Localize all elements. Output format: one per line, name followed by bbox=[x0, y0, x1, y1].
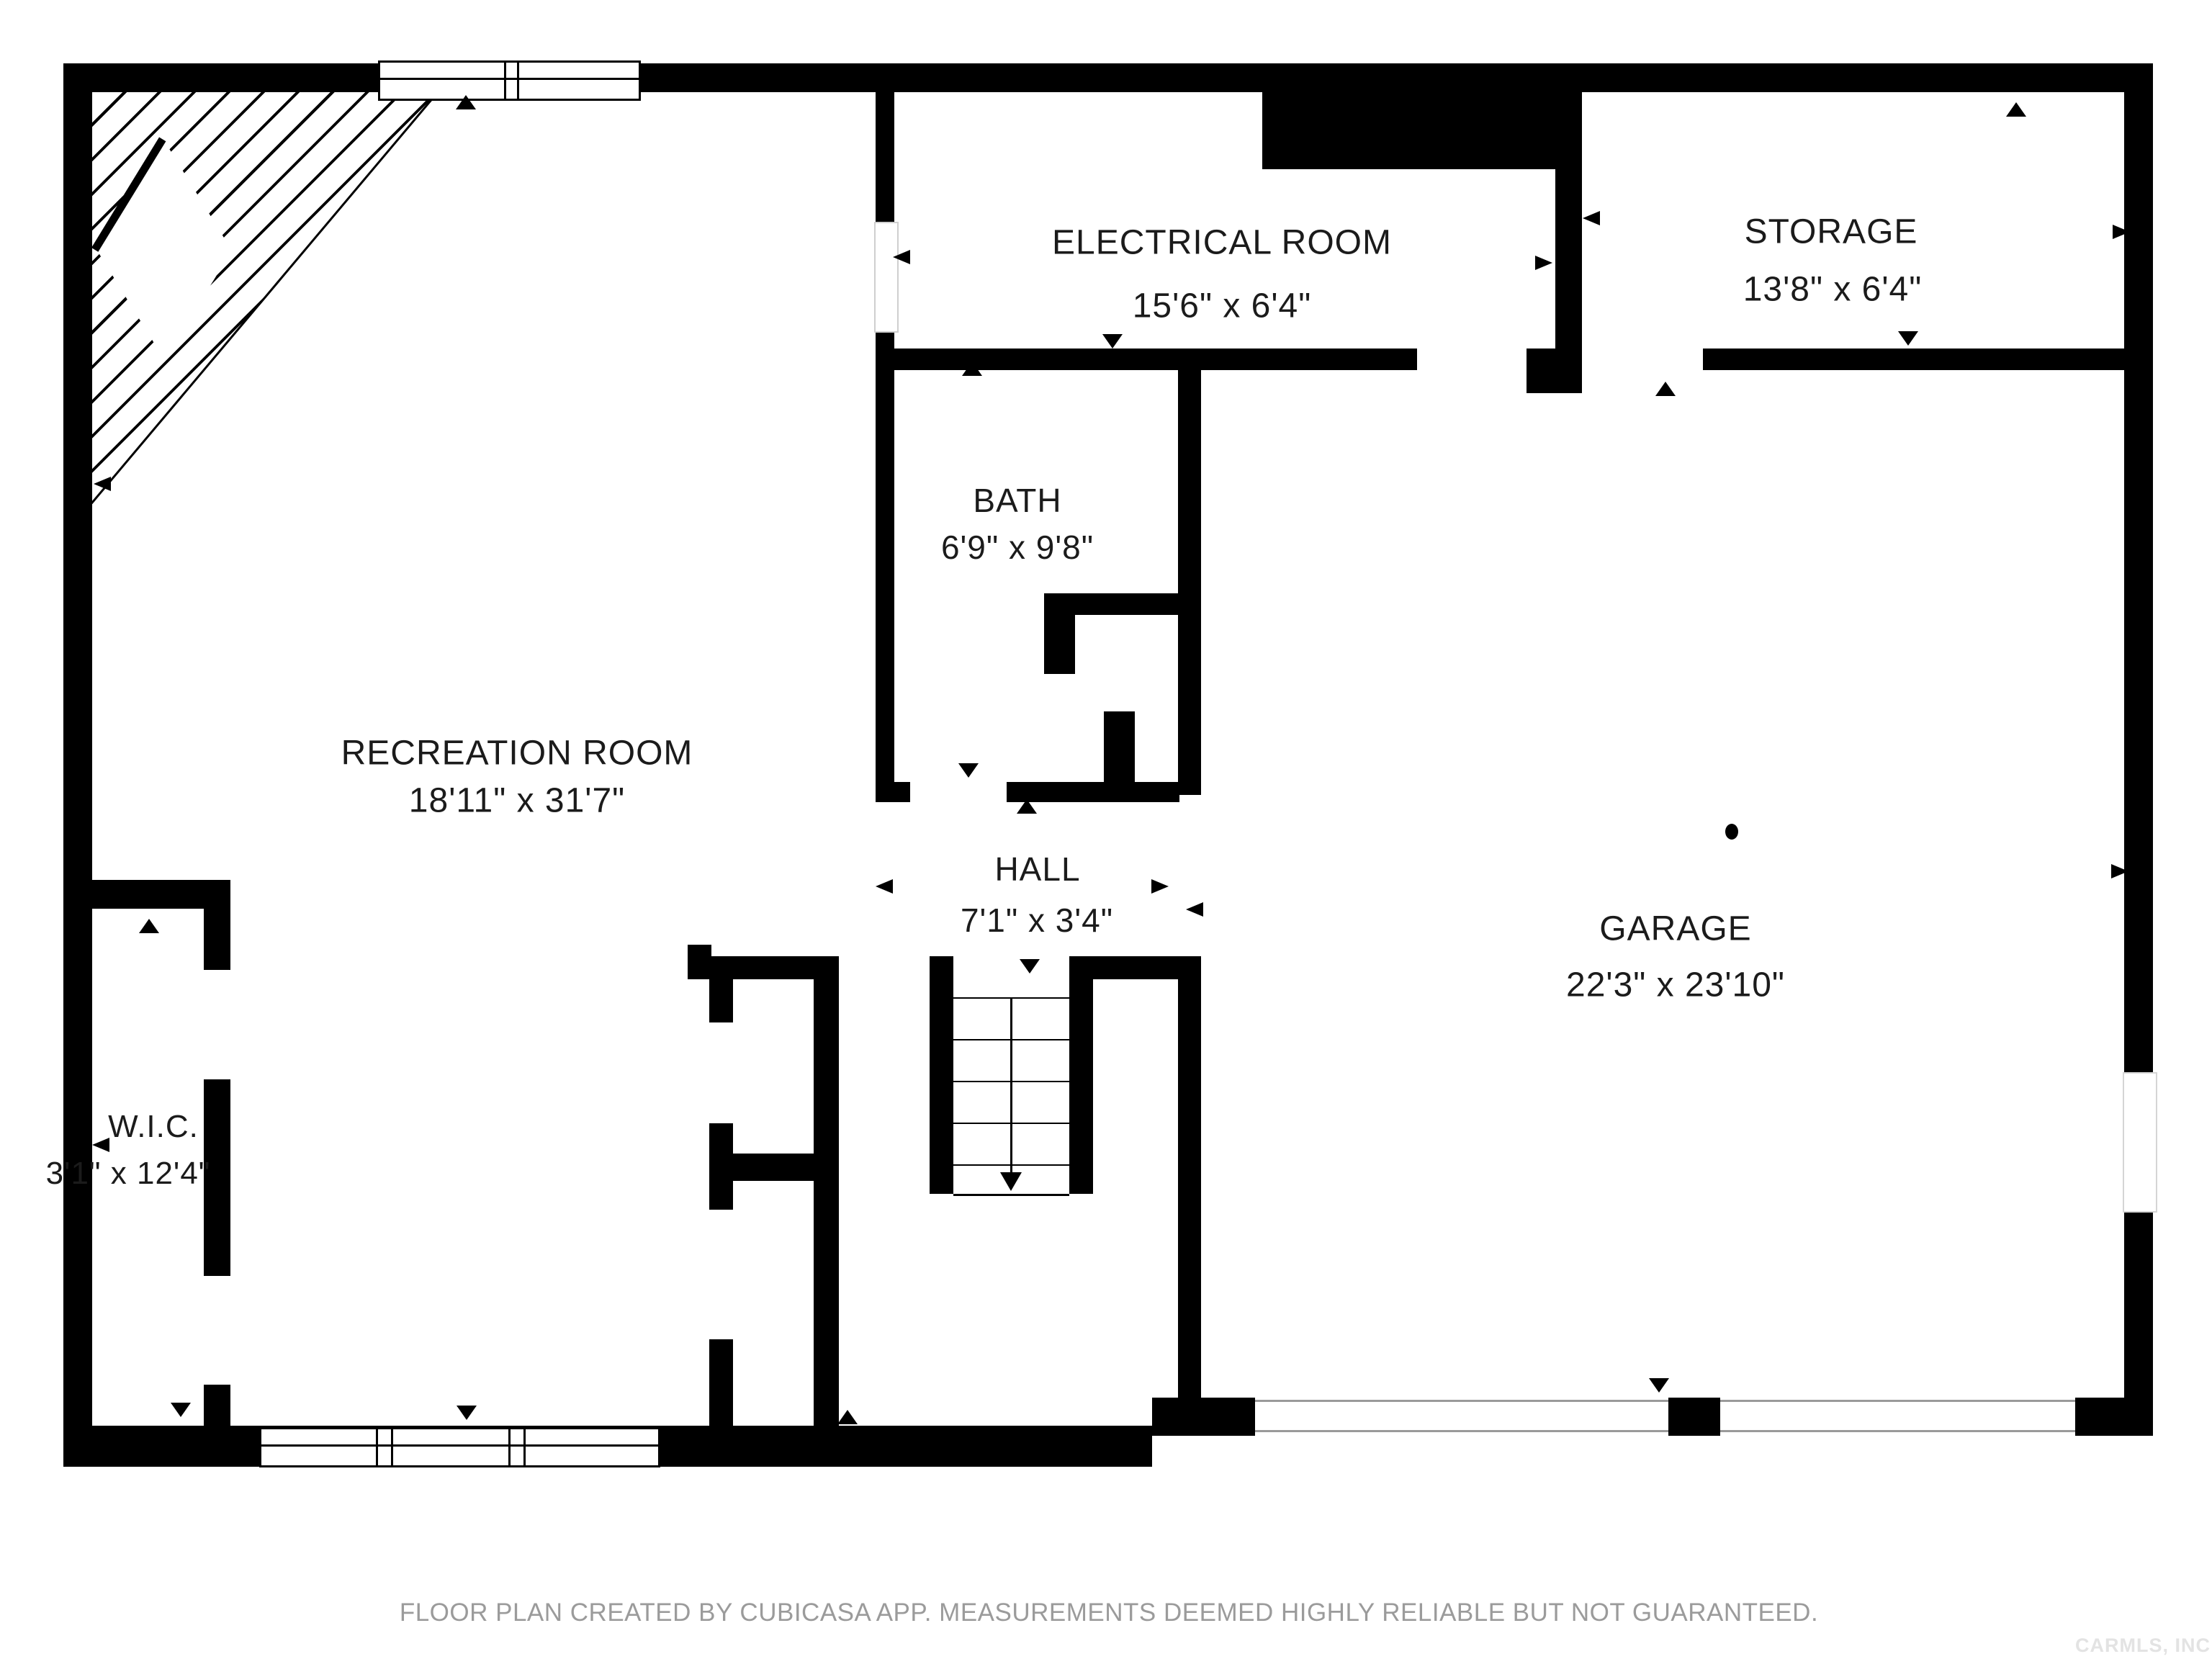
window-mullion bbox=[391, 1429, 393, 1466]
wall bbox=[876, 782, 910, 802]
window-mullion bbox=[523, 1429, 526, 1466]
triangle-right-icon bbox=[206, 1138, 223, 1152]
wall bbox=[1703, 349, 2124, 370]
wall bbox=[204, 1385, 230, 1426]
room-dims-bath: 6'9" x 9'8" bbox=[941, 528, 1094, 567]
triangle-up-icon bbox=[837, 1410, 858, 1424]
window-mid-line bbox=[261, 1444, 658, 1447]
door-opening bbox=[874, 222, 899, 333]
triangle-right-icon bbox=[1151, 879, 1169, 894]
wall bbox=[63, 63, 92, 1467]
wall bbox=[1262, 85, 1555, 169]
window-mid-line bbox=[380, 78, 639, 80]
window bbox=[378, 60, 641, 101]
triangle-left-icon bbox=[94, 477, 111, 491]
triangle-down-icon bbox=[457, 1406, 477, 1420]
triangle-left-icon bbox=[893, 250, 910, 264]
window-mullion bbox=[517, 62, 519, 99]
room-label-recreation: RECREATION ROOM bbox=[341, 734, 693, 773]
window bbox=[259, 1427, 660, 1467]
room-label-storage: STORAGE bbox=[1745, 212, 1918, 252]
window-mullion bbox=[508, 1429, 511, 1466]
wall bbox=[1527, 349, 1582, 393]
wall bbox=[930, 956, 953, 1194]
room-dims-recreation: 18'11" x 31'7" bbox=[409, 781, 625, 821]
wall bbox=[1178, 367, 1201, 795]
triangle-right-icon bbox=[2113, 225, 2130, 239]
triangle-up-icon bbox=[139, 919, 159, 933]
triangle-right-icon bbox=[1535, 256, 1552, 270]
watermark: CARMLS, INC bbox=[2075, 1635, 2211, 1657]
triangle-right-icon bbox=[2111, 864, 2128, 878]
wall bbox=[204, 880, 230, 970]
room-label-wic: W.I.C. bbox=[108, 1109, 199, 1145]
room-dims-electrical: 15'6" x 6'4" bbox=[1133, 287, 1312, 326]
footer-disclaimer: FLOOR PLAN CREATED BY CUBICASA APP. MEAS… bbox=[400, 1599, 1818, 1627]
garage-ceiling-dot bbox=[1725, 824, 1738, 840]
room-label-bath: BATH bbox=[973, 481, 1061, 520]
wall bbox=[709, 956, 733, 1022]
triangle-left-icon bbox=[92, 1138, 109, 1152]
wall bbox=[63, 63, 2153, 92]
triangle-left-icon bbox=[876, 879, 893, 894]
room-label-electrical: ELECTRICAL ROOM bbox=[1052, 223, 1392, 263]
triangle-down-icon bbox=[1898, 331, 1918, 346]
garage-door-line bbox=[1255, 1400, 2075, 1402]
door-opening bbox=[2123, 1072, 2157, 1213]
room-label-hall: HALL bbox=[994, 850, 1080, 889]
triangle-up-icon bbox=[962, 361, 982, 376]
wall bbox=[2124, 63, 2153, 1436]
triangle-up-icon bbox=[2006, 102, 2026, 117]
triangle-left-icon bbox=[1186, 902, 1203, 917]
floorplan-canvas: RECREATION ROOM 18'11" x 31'7" ELECTRICA… bbox=[0, 0, 2212, 1659]
triangle-down-icon bbox=[1649, 1378, 1669, 1393]
triangle-down-icon bbox=[1020, 959, 1040, 974]
triangle-left-icon bbox=[1583, 211, 1600, 225]
window-mullion bbox=[376, 1429, 378, 1466]
room-dims-garage: 22'3" x 23'10" bbox=[1566, 966, 1785, 1005]
wall bbox=[814, 956, 839, 1426]
room-dims-storage: 13'8" x 6'4" bbox=[1743, 270, 1923, 310]
wall bbox=[876, 92, 894, 782]
stairs-down-arrow-icon bbox=[1000, 1172, 1022, 1191]
wall bbox=[1178, 956, 1201, 1398]
stair-center-line bbox=[1010, 997, 1012, 1181]
triangle-down-icon bbox=[171, 1403, 191, 1417]
wall bbox=[688, 945, 711, 979]
wall bbox=[1069, 956, 1093, 1194]
room-dims-wic: 3'1" x 12'4" bbox=[46, 1156, 211, 1192]
garage-door-pillar bbox=[1668, 1398, 1720, 1436]
triangle-up-icon bbox=[1017, 799, 1037, 814]
room-dims-hall: 7'1" x 3'4" bbox=[961, 901, 1113, 940]
garage-door-line bbox=[1255, 1430, 2075, 1432]
triangle-down-icon bbox=[1102, 334, 1123, 349]
wall bbox=[876, 349, 1417, 370]
window-mullion bbox=[504, 62, 506, 99]
wall bbox=[709, 1339, 733, 1426]
wall bbox=[1555, 92, 1582, 351]
wall bbox=[1104, 711, 1135, 783]
stair-bottom-line bbox=[953, 1194, 1069, 1196]
triangle-up-icon bbox=[456, 95, 476, 109]
triangle-down-icon bbox=[958, 763, 979, 778]
room-label-garage: GARAGE bbox=[1599, 909, 1751, 949]
triangle-up-icon bbox=[1655, 382, 1676, 396]
wall bbox=[1044, 593, 1075, 674]
